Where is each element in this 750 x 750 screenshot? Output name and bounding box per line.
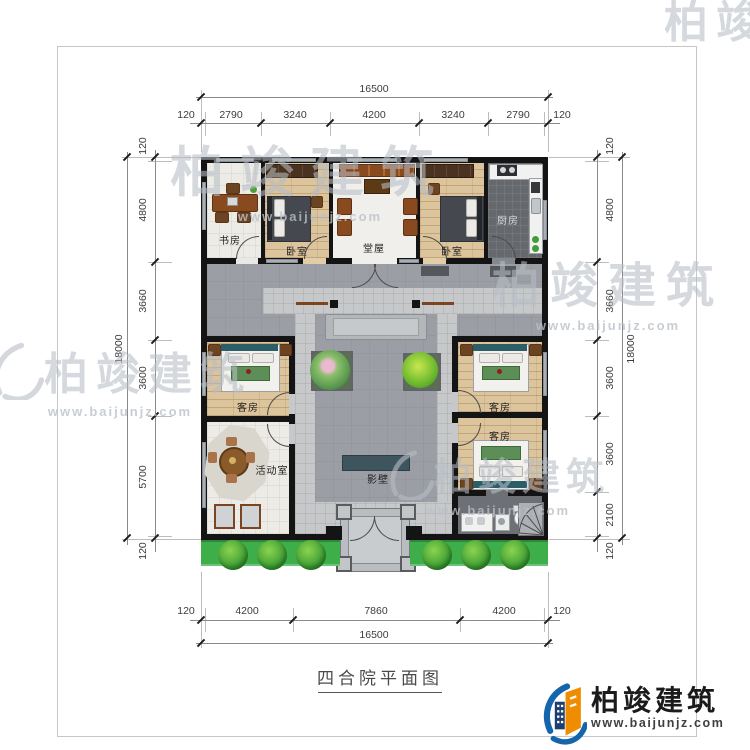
hall-armchair — [403, 219, 418, 236]
company-logo-icon — [541, 680, 587, 748]
staircase — [518, 502, 544, 536]
room-label-kitchen: 厨房 — [497, 212, 519, 227]
company-name[interactable]: 柏竣建筑 — [591, 686, 724, 716]
staircase-steps — [519, 503, 543, 535]
watermark: 柏竣建筑 — [664, 0, 750, 50]
room-label-screen-wall: 影壁 — [367, 471, 389, 486]
blanket-ornament — [497, 369, 502, 374]
drawing-title: 四合院平面图 — [305, 664, 455, 689]
west-walkway — [295, 314, 315, 534]
wardrobe — [422, 164, 474, 178]
porch-column — [412, 300, 420, 308]
dimension-line — [155, 150, 156, 552]
dim-label: 120 — [137, 137, 149, 155]
porch-column — [330, 300, 338, 308]
screen-wall — [342, 455, 410, 471]
wall — [329, 163, 333, 258]
vanity-basin — [477, 517, 485, 525]
nightstand — [208, 344, 221, 356]
bed-pillow — [479, 466, 500, 477]
game-chair — [246, 452, 255, 463]
dim-label: 120 — [604, 137, 616, 155]
bed-pillow — [228, 353, 250, 363]
dim-label: 3600 — [604, 366, 616, 389]
nightstand — [279, 344, 292, 356]
bed-pillow — [274, 219, 285, 237]
dim-label: 4200 — [492, 605, 515, 617]
bed-headboard — [267, 196, 272, 240]
game-chair — [208, 452, 217, 463]
bed-pillow — [252, 353, 274, 363]
window — [266, 259, 298, 263]
window — [543, 200, 547, 240]
bed-headboard — [473, 481, 527, 488]
gate-post — [400, 504, 416, 520]
kitchen-cooktop — [531, 182, 540, 193]
stove-burner — [500, 167, 506, 173]
dim-label: 120 — [177, 605, 195, 617]
drawing-title-block: 四合院平面图 — [305, 664, 455, 693]
dim-extension-line — [148, 536, 172, 537]
bed-pillow — [502, 466, 523, 477]
bed-pillow — [502, 353, 523, 363]
dim-label: 3240 — [441, 109, 464, 121]
watermark-text: 柏竣建筑 — [664, 0, 750, 50]
bed-pillow — [466, 199, 477, 217]
bed-pillow — [479, 353, 500, 363]
window — [424, 158, 468, 162]
bed-pillow — [466, 219, 477, 237]
hall-sofa-row — [339, 164, 415, 177]
dim-extension-line — [548, 572, 549, 648]
window — [543, 430, 547, 474]
dimension-line — [196, 97, 553, 98]
watermark-logo-glyph — [0, 340, 44, 400]
porch-rail — [422, 302, 454, 305]
wardrobe — [266, 164, 318, 178]
bush — [296, 540, 326, 570]
bush — [461, 540, 491, 570]
dim-label: 120 — [137, 542, 149, 560]
room-label-bedroom-left: 卧室 — [286, 243, 308, 258]
wall — [452, 336, 548, 342]
bed-blanket — [231, 366, 270, 381]
room-label-guest-west: 客房 — [237, 399, 259, 414]
window — [347, 158, 397, 162]
desk-plant — [250, 186, 257, 193]
company-logo[interactable]: 柏竣建筑 www.baijunjz.com — [541, 666, 747, 742]
bedroom-doormat — [421, 266, 449, 276]
room-label-guest-east-lower: 客房 — [489, 428, 511, 443]
porch-walkway — [263, 288, 542, 314]
dim-label: 18000 — [625, 334, 637, 363]
dim-extension-line — [122, 157, 201, 158]
wall — [201, 336, 295, 342]
dim-label: 18000 — [113, 334, 125, 363]
washer-door — [498, 518, 505, 525]
dim-label: 120 — [553, 109, 571, 121]
armchair — [214, 504, 235, 529]
bed-blanket — [481, 446, 521, 460]
dim-label: 2790 — [506, 109, 529, 121]
dim-label: 4800 — [604, 198, 616, 221]
kitchen-sink — [531, 198, 541, 214]
dim-label: 3660 — [604, 289, 616, 312]
bush — [218, 540, 248, 570]
dimension-line — [190, 123, 560, 124]
dim-label: 3600 — [604, 442, 616, 465]
window — [399, 259, 419, 263]
door-opening — [486, 490, 508, 496]
game-table-center — [229, 457, 236, 464]
blanket-ornament — [246, 369, 251, 374]
window — [272, 158, 316, 162]
window — [202, 352, 206, 396]
dim-label: 16500 — [359, 629, 388, 641]
dim-label: 120 — [604, 542, 616, 560]
company-url[interactable]: www.baijunjz.com — [591, 716, 724, 730]
gate-wall-stub — [326, 526, 342, 540]
bush — [257, 540, 287, 570]
dim-label: 7860 — [364, 605, 387, 617]
dim-label: 2100 — [604, 503, 616, 526]
dim-label: 120 — [177, 109, 195, 121]
dim-label: 3660 — [137, 289, 149, 312]
stove-burner — [509, 167, 515, 173]
window — [543, 352, 547, 396]
kitchen-doormat — [490, 266, 516, 277]
desk-chair — [237, 212, 251, 223]
room-label-activity: 活动室 — [256, 462, 289, 477]
nightstand — [529, 478, 542, 490]
wall — [484, 163, 488, 258]
dim-label: 3600 — [137, 366, 149, 389]
nightstand — [460, 478, 473, 490]
dim-label: 120 — [553, 605, 571, 617]
dimension-line — [127, 152, 128, 545]
window — [202, 182, 206, 230]
vanity-basin — [465, 517, 473, 525]
bed-pillow — [274, 199, 285, 217]
dim-label: 4200 — [362, 109, 385, 121]
nightstand — [460, 344, 473, 356]
bed-headboard — [477, 196, 482, 240]
wall — [261, 163, 265, 258]
dim-label: 4800 — [137, 198, 149, 221]
bush — [422, 540, 452, 570]
room-label-guest-east-upper: 客房 — [489, 399, 511, 414]
dim-label: 3240 — [283, 109, 306, 121]
kitchen-plant — [532, 245, 539, 252]
nightstand — [428, 183, 440, 195]
dim-label: 4200 — [235, 605, 258, 617]
bed-headboard — [221, 344, 278, 351]
floor-plan-sheet: 16500 120 2790 3240 4200 3240 2790 120 1… — [0, 0, 750, 750]
hall-table — [364, 179, 390, 194]
dim-extension-line — [122, 539, 201, 540]
kitchen-plant — [532, 236, 539, 243]
desk-chair — [226, 183, 240, 194]
game-chair — [226, 474, 237, 483]
bed-headboard — [473, 344, 527, 351]
desk-laptop — [227, 197, 238, 206]
dim-extension-line — [201, 572, 202, 648]
dimension-line — [190, 620, 560, 621]
game-chair — [226, 437, 237, 446]
hall-armchair — [337, 219, 352, 236]
room-label-study: 书房 — [219, 232, 241, 247]
porch-rail — [296, 302, 328, 305]
room-label-bedroom-right: 卧室 — [441, 243, 463, 258]
dim-label: 5700 — [137, 465, 149, 488]
green-plant — [402, 352, 438, 388]
bush — [500, 540, 530, 570]
nightstand — [311, 196, 323, 208]
dim-label: 16500 — [359, 83, 388, 95]
desk-chair — [215, 212, 229, 223]
hall-steps-inner — [333, 318, 419, 336]
wall — [201, 416, 295, 422]
hall-armchair — [403, 198, 418, 215]
hall-armchair — [337, 198, 352, 215]
dim-extension-line — [205, 112, 206, 136]
dimension-line — [622, 152, 623, 545]
armchair — [240, 504, 261, 529]
flower-plant — [310, 350, 350, 390]
nightstand — [529, 344, 542, 356]
gate-wall-stub — [406, 526, 422, 540]
title-underline — [318, 692, 442, 693]
dimension-line — [196, 643, 553, 644]
room-label-hall: 堂屋 — [363, 240, 385, 255]
window — [216, 158, 254, 162]
dim-label: 2790 — [219, 109, 242, 121]
